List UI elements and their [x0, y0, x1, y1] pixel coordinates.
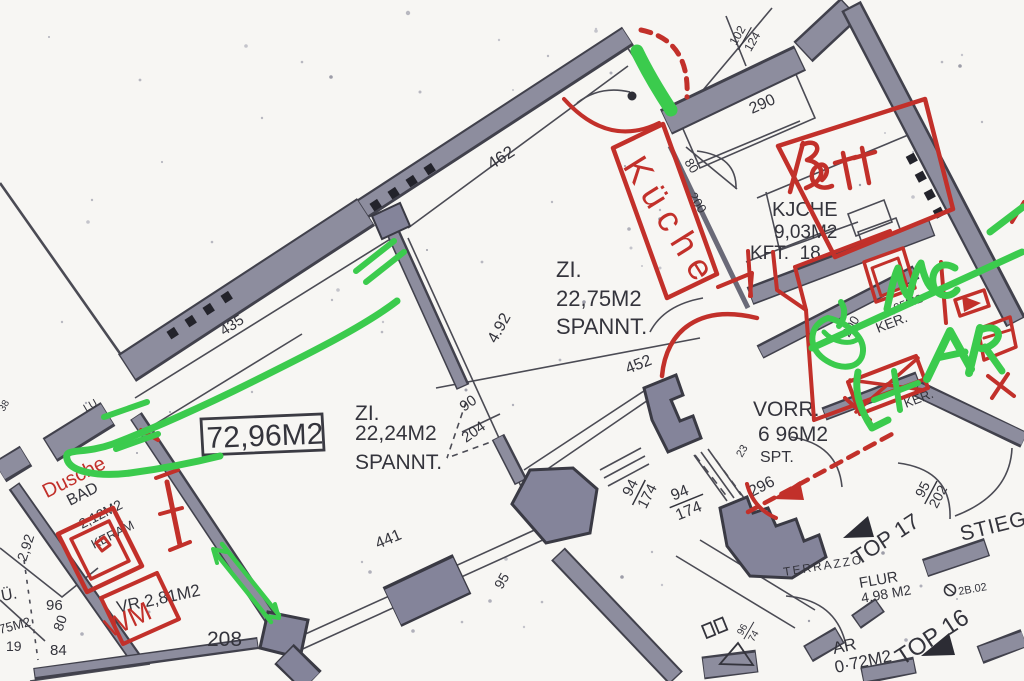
svg-text:22,24M2: 22,24M2: [355, 422, 437, 445]
svg-text:96: 96: [46, 597, 63, 614]
svg-text:6 96M2: 6 96M2: [758, 423, 828, 446]
svg-text:VORR.: VORR.: [753, 398, 820, 421]
svg-text:ZI.: ZI.: [556, 257, 582, 282]
svg-text:SPT.: SPT.: [760, 449, 794, 466]
svg-text:84: 84: [50, 642, 67, 659]
svg-text:SPANNT.: SPANNT.: [355, 451, 442, 474]
svg-text:SPANNT.: SPANNT.: [556, 314, 647, 339]
svg-text:22,75M2: 22,75M2: [556, 286, 642, 311]
svg-text:Ü.: Ü.: [0, 584, 18, 605]
svg-text:208: 208: [207, 628, 242, 651]
svg-text:72,96M2: 72,96M2: [206, 418, 324, 455]
svg-text:19: 19: [6, 638, 22, 654]
